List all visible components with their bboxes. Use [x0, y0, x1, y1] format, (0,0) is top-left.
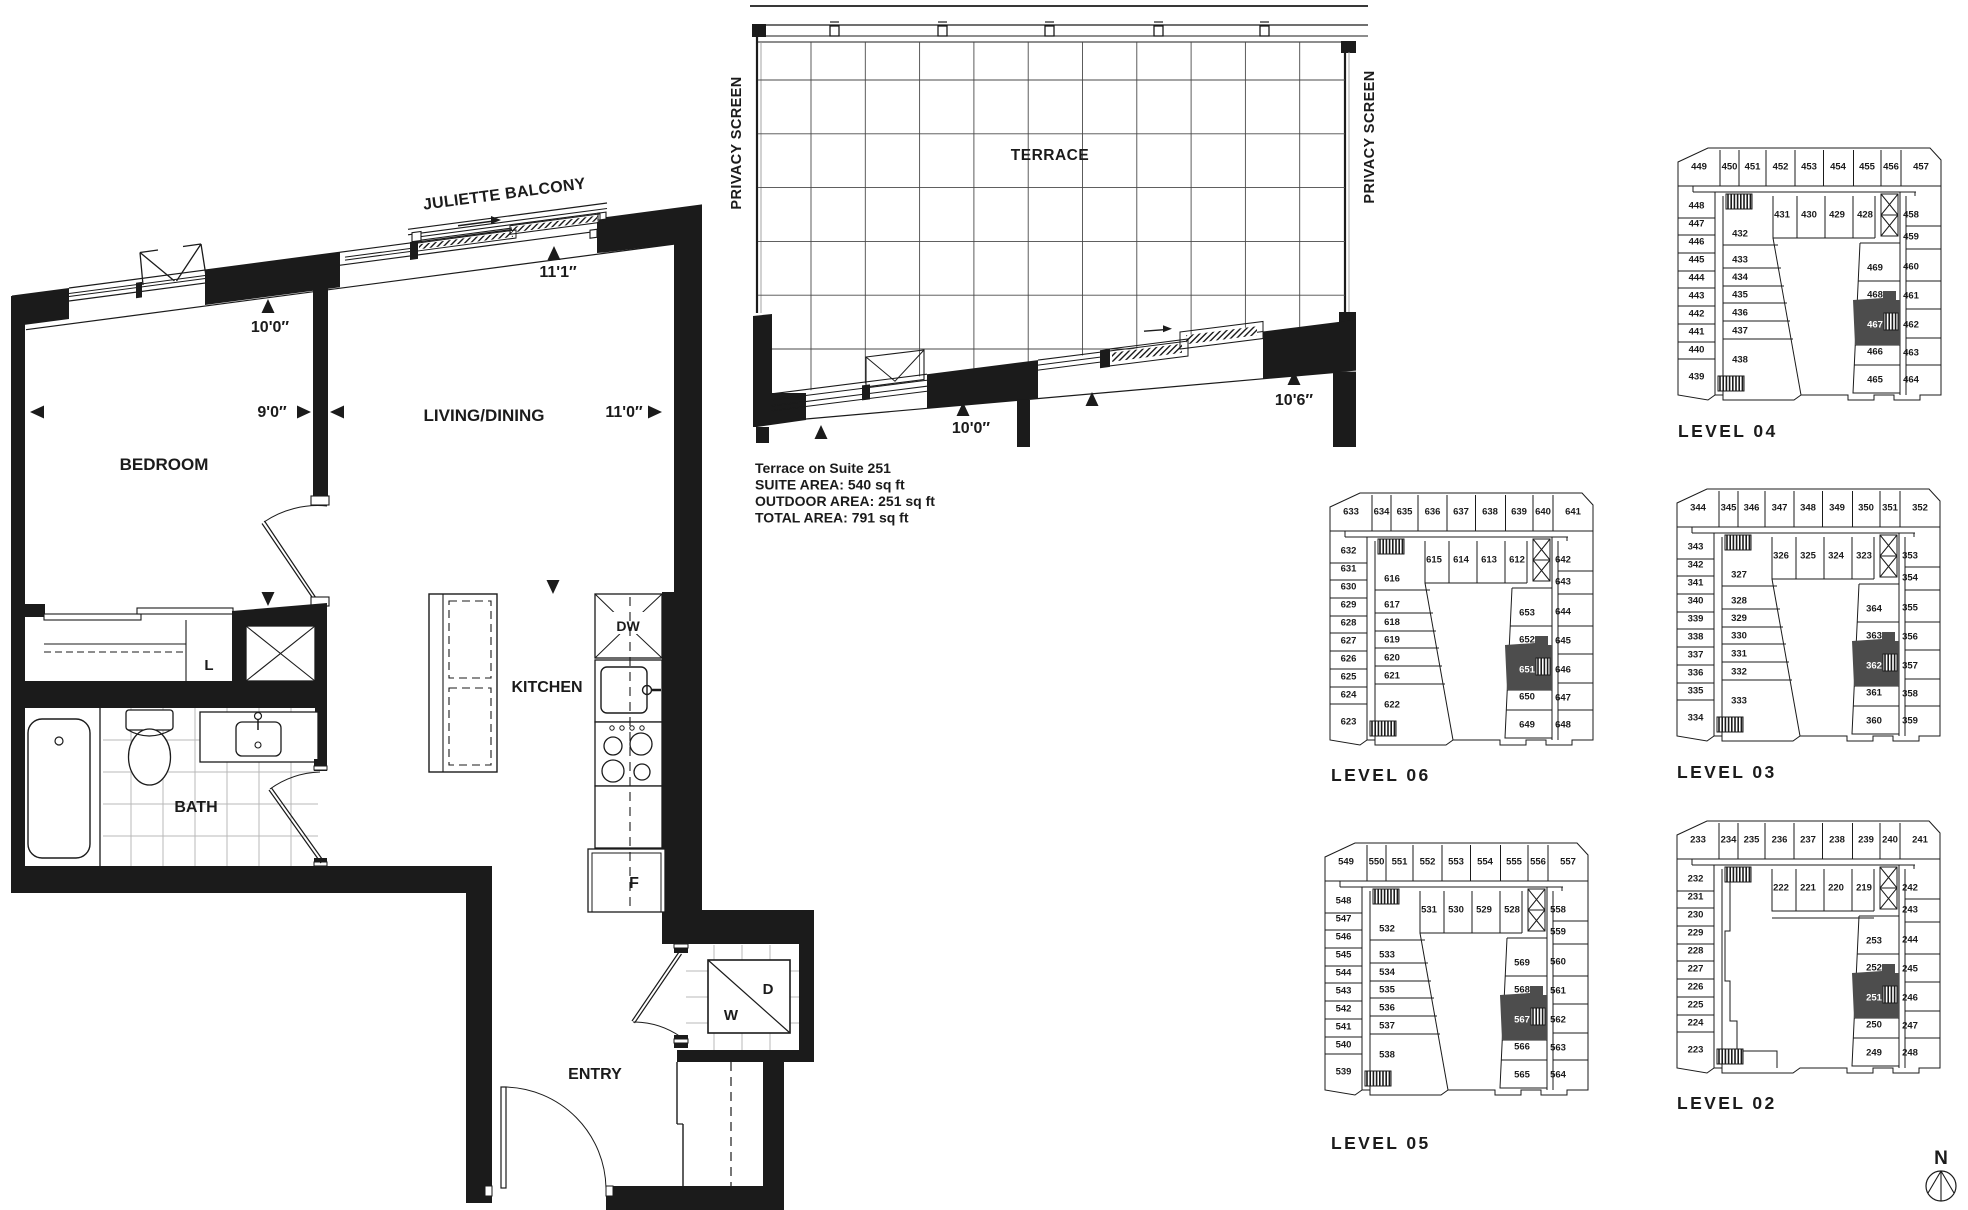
svg-text:652: 652: [1519, 634, 1535, 645]
svg-text:219: 219: [1856, 882, 1872, 893]
svg-text:433: 433: [1732, 254, 1748, 265]
svg-text:W: W: [724, 1007, 739, 1024]
svg-text:614: 614: [1453, 554, 1470, 565]
svg-text:230: 230: [1688, 909, 1704, 920]
svg-text:462: 462: [1903, 319, 1919, 330]
svg-text:10'0″: 10'0″: [251, 319, 290, 336]
svg-text:438: 438: [1732, 354, 1748, 365]
svg-text:DW: DW: [616, 618, 640, 634]
svg-text:348: 348: [1800, 502, 1816, 513]
svg-text:437: 437: [1732, 325, 1748, 336]
svg-text:OUTDOOR AREA: 251 sq ft: OUTDOOR AREA: 251 sq ft: [755, 493, 935, 509]
svg-text:531: 531: [1421, 904, 1438, 915]
svg-text:633: 633: [1343, 506, 1359, 517]
svg-text:640: 640: [1535, 506, 1551, 517]
svg-text:650: 650: [1519, 691, 1535, 702]
svg-text:537: 537: [1379, 1020, 1395, 1031]
svg-text:431: 431: [1774, 209, 1791, 220]
svg-text:LEVEL 02: LEVEL 02: [1677, 1093, 1777, 1113]
svg-text:333: 333: [1731, 695, 1747, 706]
svg-text:444: 444: [1689, 272, 1706, 283]
svg-text:248: 248: [1902, 1047, 1918, 1058]
svg-text:625: 625: [1341, 671, 1358, 682]
svg-text:231: 231: [1688, 891, 1705, 902]
svg-text:341: 341: [1688, 577, 1705, 588]
svg-text:536: 536: [1379, 1002, 1395, 1013]
svg-text:432: 432: [1732, 228, 1748, 239]
svg-text:460: 460: [1903, 261, 1919, 272]
svg-text:646: 646: [1555, 664, 1571, 675]
svg-text:239: 239: [1858, 834, 1874, 845]
svg-text:326: 326: [1773, 550, 1789, 561]
svg-text:11'0″: 11'0″: [605, 404, 643, 421]
svg-text:235: 235: [1744, 834, 1761, 845]
svg-text:330: 330: [1731, 630, 1747, 641]
svg-text:547: 547: [1336, 913, 1352, 924]
svg-text:237: 237: [1800, 834, 1816, 845]
svg-text:651: 651: [1519, 664, 1536, 675]
svg-text:561: 561: [1550, 985, 1567, 996]
svg-text:357: 357: [1902, 660, 1918, 671]
svg-text:361: 361: [1866, 687, 1883, 698]
svg-text:334: 334: [1688, 712, 1705, 723]
svg-text:339: 339: [1688, 613, 1704, 624]
svg-text:628: 628: [1341, 617, 1357, 628]
svg-text:463: 463: [1903, 347, 1919, 358]
svg-text:626: 626: [1341, 653, 1357, 664]
svg-text:358: 358: [1902, 688, 1918, 699]
svg-text:331: 331: [1731, 648, 1748, 659]
svg-text:ENTRY: ENTRY: [568, 1066, 622, 1083]
svg-text:558: 558: [1550, 904, 1566, 915]
svg-text:LEVEL 05: LEVEL 05: [1331, 1133, 1431, 1153]
svg-text:540: 540: [1336, 1039, 1352, 1050]
svg-text:LEVEL 04: LEVEL 04: [1678, 421, 1778, 441]
svg-text:549: 549: [1338, 856, 1354, 867]
svg-text:245: 245: [1902, 963, 1919, 974]
svg-text:530: 530: [1448, 904, 1464, 915]
svg-text:10'6″: 10'6″: [1275, 392, 1314, 409]
svg-text:D: D: [763, 981, 774, 998]
svg-text:564: 564: [1550, 1069, 1567, 1080]
svg-text:468: 468: [1867, 289, 1883, 300]
svg-text:642: 642: [1555, 554, 1571, 565]
svg-text:637: 637: [1453, 506, 1469, 517]
svg-text:428: 428: [1857, 209, 1873, 220]
svg-text:623: 623: [1341, 716, 1357, 727]
svg-text:567: 567: [1514, 1014, 1530, 1025]
svg-text:355: 355: [1902, 602, 1919, 613]
svg-text:440: 440: [1689, 344, 1705, 355]
svg-text:9'0″: 9'0″: [257, 404, 287, 421]
svg-text:546: 546: [1336, 931, 1352, 942]
svg-text:324: 324: [1828, 550, 1845, 561]
svg-text:552: 552: [1420, 856, 1436, 867]
svg-text:225: 225: [1688, 999, 1705, 1010]
svg-text:345: 345: [1721, 502, 1738, 513]
svg-text:448: 448: [1689, 200, 1705, 211]
svg-text:246: 246: [1902, 992, 1918, 1003]
svg-text:556: 556: [1530, 856, 1546, 867]
svg-text:PRIVACY SCREEN: PRIVACY SCREEN: [729, 76, 745, 209]
svg-text:247: 247: [1902, 1020, 1918, 1031]
svg-text:550: 550: [1369, 856, 1385, 867]
svg-text:430: 430: [1801, 209, 1817, 220]
svg-text:226: 226: [1688, 981, 1704, 992]
svg-text:353: 353: [1902, 550, 1918, 561]
svg-text:566: 566: [1514, 1041, 1530, 1052]
svg-text:612: 612: [1509, 554, 1525, 565]
svg-text:243: 243: [1902, 904, 1918, 915]
svg-text:456: 456: [1883, 161, 1899, 172]
svg-text:621: 621: [1384, 670, 1401, 681]
svg-text:442: 442: [1689, 308, 1705, 319]
svg-text:647: 647: [1555, 692, 1571, 703]
svg-text:459: 459: [1903, 231, 1919, 242]
svg-text:BEDROOM: BEDROOM: [120, 455, 209, 474]
svg-text:562: 562: [1550, 1014, 1566, 1025]
svg-text:362: 362: [1866, 660, 1882, 671]
svg-text:563: 563: [1550, 1042, 1566, 1053]
svg-text:238: 238: [1829, 834, 1845, 845]
svg-text:325: 325: [1800, 550, 1817, 561]
svg-text:TERRACE: TERRACE: [1011, 147, 1089, 164]
svg-text:452: 452: [1773, 161, 1789, 172]
svg-text:335: 335: [1688, 685, 1705, 696]
svg-text:223: 223: [1688, 1044, 1704, 1055]
svg-text:620: 620: [1384, 652, 1400, 663]
svg-text:340: 340: [1688, 595, 1704, 606]
svg-text:250: 250: [1866, 1019, 1882, 1030]
svg-text:220: 220: [1828, 882, 1844, 893]
svg-text:10'0″: 10'0″: [952, 420, 991, 437]
svg-text:532: 532: [1379, 923, 1395, 934]
svg-text:347: 347: [1772, 502, 1788, 513]
svg-text:332: 332: [1731, 666, 1747, 677]
svg-text:LIVING/DINING: LIVING/DINING: [424, 406, 545, 425]
svg-text:644: 644: [1555, 606, 1572, 617]
svg-text:227: 227: [1688, 963, 1704, 974]
svg-text:F: F: [629, 875, 639, 892]
svg-text:TOTAL AREA: 791 sq ft: TOTAL AREA: 791 sq ft: [755, 510, 909, 526]
svg-text:SUITE AREA: 540 sq ft: SUITE AREA: 540 sq ft: [755, 477, 905, 493]
svg-text:L: L: [204, 657, 213, 674]
svg-text:543: 543: [1336, 985, 1352, 996]
svg-text:631: 631: [1341, 563, 1358, 574]
svg-text:638: 638: [1482, 506, 1498, 517]
svg-text:364: 364: [1866, 603, 1883, 614]
svg-text:429: 429: [1829, 209, 1845, 220]
svg-text:343: 343: [1688, 541, 1704, 552]
svg-text:441: 441: [1689, 326, 1706, 337]
svg-text:551: 551: [1392, 856, 1409, 867]
svg-text:535: 535: [1379, 984, 1396, 995]
svg-text:645: 645: [1555, 635, 1572, 646]
svg-text:632: 632: [1341, 545, 1357, 556]
svg-text:236: 236: [1772, 834, 1788, 845]
svg-text:617: 617: [1384, 599, 1400, 610]
svg-text:538: 538: [1379, 1049, 1395, 1060]
svg-text:344: 344: [1690, 502, 1707, 513]
svg-text:569: 569: [1514, 957, 1530, 968]
svg-text:244: 244: [1902, 934, 1919, 945]
svg-text:553: 553: [1448, 856, 1464, 867]
svg-text:465: 465: [1867, 374, 1884, 385]
svg-text:534: 534: [1379, 967, 1396, 978]
svg-text:449: 449: [1691, 161, 1707, 172]
svg-text:232: 232: [1688, 873, 1704, 884]
svg-text:234: 234: [1721, 834, 1738, 845]
svg-text:643: 643: [1555, 576, 1571, 587]
svg-text:351: 351: [1882, 502, 1899, 513]
svg-text:228: 228: [1688, 945, 1704, 956]
svg-text:555: 555: [1506, 856, 1523, 867]
svg-text:466: 466: [1867, 346, 1883, 357]
svg-text:222: 222: [1773, 882, 1789, 893]
svg-text:559: 559: [1550, 926, 1566, 937]
svg-text:653: 653: [1519, 607, 1535, 618]
svg-text:533: 533: [1379, 949, 1395, 960]
svg-text:224: 224: [1688, 1017, 1705, 1028]
svg-text:545: 545: [1336, 949, 1353, 960]
svg-text:451: 451: [1745, 161, 1762, 172]
svg-text:349: 349: [1829, 502, 1845, 513]
svg-text:635: 635: [1397, 506, 1414, 517]
svg-text:445: 445: [1689, 254, 1706, 265]
svg-text:446: 446: [1689, 236, 1705, 247]
svg-text:554: 554: [1477, 856, 1494, 867]
svg-text:LEVEL 03: LEVEL 03: [1677, 762, 1777, 782]
svg-text:327: 327: [1731, 569, 1747, 580]
svg-text:458: 458: [1903, 209, 1919, 220]
svg-text:436: 436: [1732, 307, 1748, 318]
svg-text:328: 328: [1731, 595, 1747, 606]
svg-text:639: 639: [1511, 506, 1527, 517]
svg-text:565: 565: [1514, 1069, 1531, 1080]
svg-text:233: 233: [1690, 834, 1706, 845]
svg-text:453: 453: [1801, 161, 1817, 172]
svg-text:636: 636: [1425, 506, 1441, 517]
svg-text:629: 629: [1341, 599, 1357, 610]
svg-text:624: 624: [1341, 689, 1358, 700]
svg-text:229: 229: [1688, 927, 1704, 938]
svg-text:435: 435: [1732, 289, 1749, 300]
svg-text:529: 529: [1476, 904, 1492, 915]
svg-text:443: 443: [1689, 290, 1705, 301]
svg-text:541: 541: [1336, 1021, 1353, 1032]
svg-text:542: 542: [1336, 1003, 1352, 1014]
svg-text:253: 253: [1866, 935, 1882, 946]
svg-text:360: 360: [1866, 715, 1882, 726]
svg-text:LEVEL 06: LEVEL 06: [1331, 765, 1431, 785]
svg-text:PRIVACY SCREEN: PRIVACY SCREEN: [1362, 70, 1378, 203]
svg-text:454: 454: [1830, 161, 1847, 172]
svg-text:641: 641: [1565, 506, 1582, 517]
svg-text:242: 242: [1902, 882, 1918, 893]
svg-text:JULIETTE BALCONY: JULIETTE BALCONY: [422, 175, 587, 213]
svg-text:544: 544: [1336, 967, 1353, 978]
svg-text:464: 464: [1903, 374, 1920, 385]
svg-text:619: 619: [1384, 634, 1400, 645]
svg-text:434: 434: [1732, 272, 1749, 283]
svg-text:627: 627: [1341, 635, 1357, 646]
svg-text:539: 539: [1336, 1066, 1352, 1077]
svg-text:329: 329: [1731, 613, 1747, 624]
svg-text:354: 354: [1902, 572, 1919, 583]
svg-text:323: 323: [1856, 550, 1872, 561]
svg-text:N: N: [1934, 1148, 1948, 1169]
svg-text:240: 240: [1882, 834, 1898, 845]
svg-text:469: 469: [1867, 262, 1883, 273]
svg-text:622: 622: [1384, 699, 1400, 710]
svg-text:BATH: BATH: [174, 799, 217, 816]
svg-text:252: 252: [1866, 962, 1882, 973]
svg-text:439: 439: [1689, 371, 1705, 382]
svg-text:338: 338: [1688, 631, 1704, 642]
svg-text:241: 241: [1912, 834, 1929, 845]
svg-text:249: 249: [1866, 1047, 1882, 1058]
svg-text:560: 560: [1550, 956, 1566, 967]
svg-text:447: 447: [1689, 218, 1705, 229]
svg-text:548: 548: [1336, 895, 1352, 906]
svg-text:350: 350: [1858, 502, 1874, 513]
svg-text:KITCHEN: KITCHEN: [511, 679, 582, 696]
svg-text:528: 528: [1504, 904, 1520, 915]
svg-text:251: 251: [1866, 992, 1883, 1003]
svg-text:337: 337: [1688, 649, 1704, 660]
svg-text:363: 363: [1866, 630, 1882, 641]
svg-text:455: 455: [1859, 161, 1876, 172]
svg-text:336: 336: [1688, 667, 1704, 678]
svg-text:346: 346: [1744, 502, 1760, 513]
svg-text:342: 342: [1688, 559, 1704, 570]
svg-text:359: 359: [1902, 715, 1918, 726]
svg-text:Terrace on Suite 251: Terrace on Suite 251: [755, 460, 891, 476]
svg-text:557: 557: [1560, 856, 1576, 867]
svg-text:618: 618: [1384, 617, 1400, 628]
svg-text:649: 649: [1519, 719, 1535, 730]
svg-text:615: 615: [1426, 554, 1443, 565]
svg-text:461: 461: [1903, 290, 1920, 301]
svg-text:630: 630: [1341, 581, 1357, 592]
svg-text:11'1″: 11'1″: [539, 264, 577, 281]
svg-text:568: 568: [1514, 984, 1530, 995]
svg-text:648: 648: [1555, 719, 1571, 730]
svg-text:352: 352: [1912, 502, 1928, 513]
svg-text:221: 221: [1800, 882, 1817, 893]
svg-text:613: 613: [1481, 554, 1497, 565]
svg-text:450: 450: [1722, 161, 1738, 172]
svg-text:467: 467: [1867, 319, 1883, 330]
svg-text:356: 356: [1902, 631, 1918, 642]
svg-text:457: 457: [1913, 161, 1929, 172]
svg-text:634: 634: [1374, 506, 1391, 517]
svg-text:616: 616: [1384, 573, 1400, 584]
